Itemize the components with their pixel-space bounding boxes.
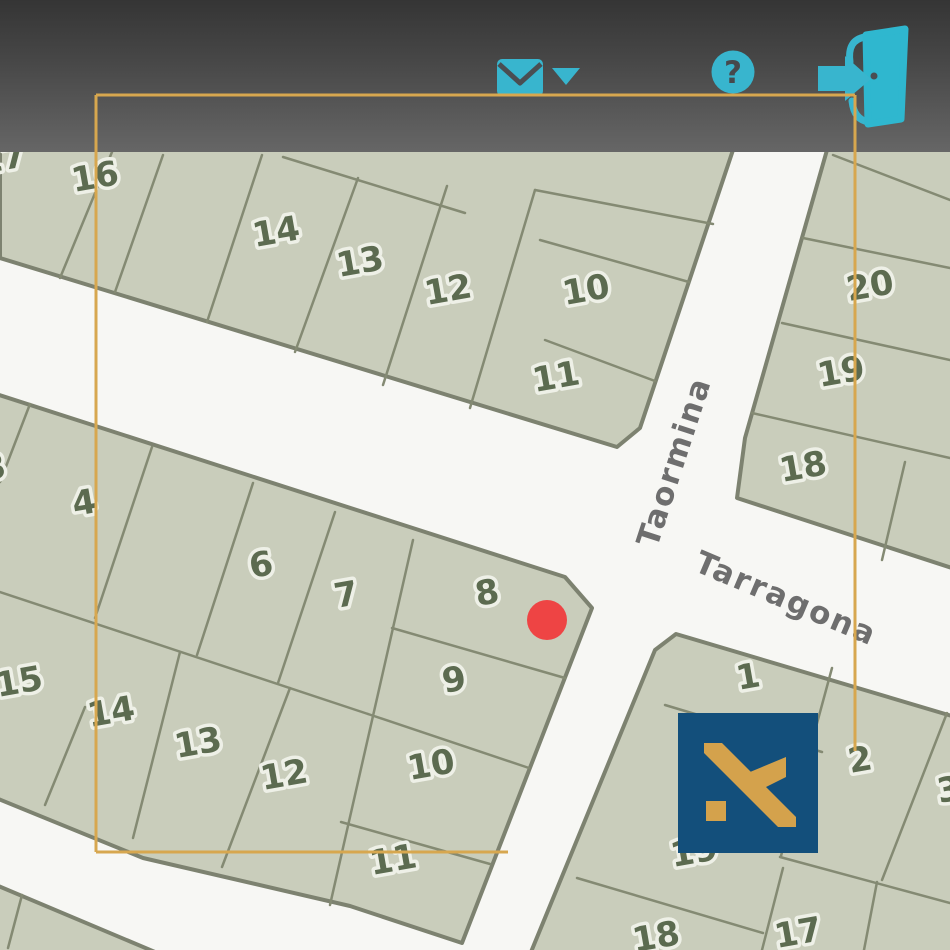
parcel-number-label: 13 xyxy=(171,719,225,767)
parcel-number-label: 10 xyxy=(404,741,458,789)
parcel-number-label: 14 xyxy=(84,688,138,736)
parcel-number-label: 13 xyxy=(333,238,387,286)
messages-dropdown-button[interactable] xyxy=(488,52,588,102)
parcel-number-label: 18 xyxy=(776,443,830,491)
parcel-marker-dot[interactable] xyxy=(527,600,567,640)
parcel-number-label: 16 xyxy=(68,153,122,201)
parcel-number-label: 19 xyxy=(814,348,868,396)
parcel-number-label: 10 xyxy=(559,266,613,314)
parcel-number-label: 12 xyxy=(421,266,475,314)
envelope-icon xyxy=(497,59,543,96)
question-mark-glyph: ? xyxy=(724,55,742,91)
parcel-number-label: 11 xyxy=(366,836,420,884)
help-button[interactable]: ? xyxy=(709,48,757,96)
exit-door-icon xyxy=(808,18,918,136)
parcel-number-label: 17 xyxy=(771,909,825,950)
parcel-number-label: 15 xyxy=(0,658,46,706)
parcel-number-label: 20 xyxy=(843,262,897,310)
brand-logo xyxy=(678,713,818,853)
parcel-number-label: 12 xyxy=(257,751,311,799)
app-header: ? xyxy=(0,0,950,152)
map-viewer-screen: TaorminaTarragona 1716141312101120191834… xyxy=(0,0,950,950)
logout-button[interactable] xyxy=(808,18,918,136)
parcel-number-label: 11 xyxy=(529,353,583,401)
chevron-down-icon xyxy=(552,68,580,85)
parcel-number-label: 14 xyxy=(249,208,303,256)
